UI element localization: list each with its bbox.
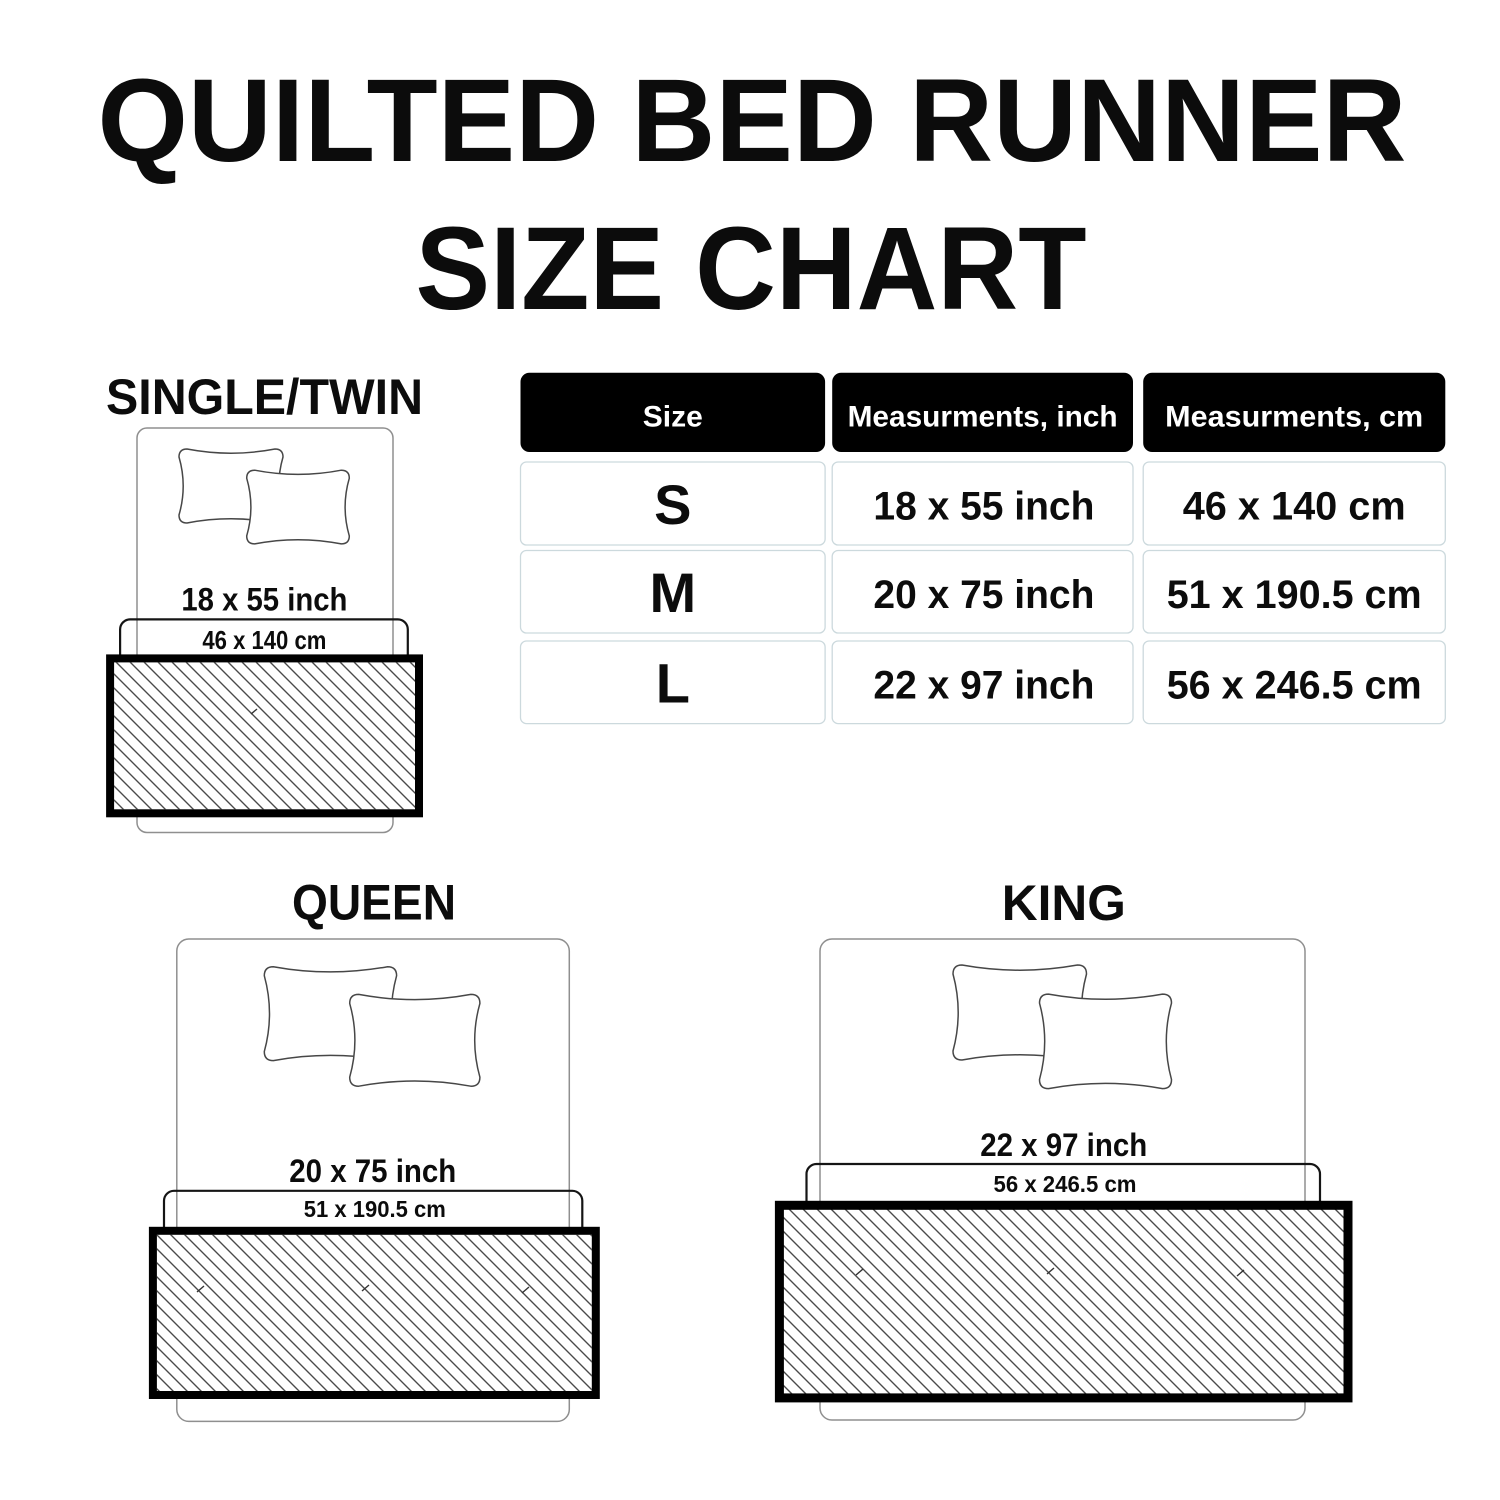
svg-text:QUILTED BED RUNNER: QUILTED BED RUNNER [98,55,1407,187]
svg-text:51 x 190.5 cm: 51 x 190.5 cm [1167,573,1422,617]
svg-text:51 x 190.5 cm: 51 x 190.5 cm [304,1196,446,1222]
svg-text:56 x 246.5 cm: 56 x 246.5 cm [1167,664,1422,708]
svg-text:L: L [656,652,690,715]
svg-text:SINGLE/TWIN: SINGLE/TWIN [106,369,423,425]
svg-text:20 x 75 inch: 20 x 75 inch [289,1153,456,1189]
svg-text:Size: Size [643,401,703,434]
svg-text:QUEEN: QUEEN [292,875,456,931]
svg-text:M: M [649,561,696,624]
svg-text:KING: KING [1002,875,1126,931]
svg-text:S: S [654,473,691,536]
svg-text:SIZE CHART: SIZE CHART [416,203,1087,335]
svg-text:Measurments, inch: Measurments, inch [848,401,1118,434]
svg-text:22 x 97 inch: 22 x 97 inch [873,664,1094,708]
svg-text:Measurments, cm: Measurments, cm [1165,401,1423,434]
svg-text:22 x 97 inch: 22 x 97 inch [980,1127,1147,1163]
svg-text:18 x 55 inch: 18 x 55 inch [873,485,1094,529]
svg-text:46 x 140 cm: 46 x 140 cm [1183,485,1406,529]
svg-text:46 x 140 cm: 46 x 140 cm [202,625,326,655]
svg-text:56 x 246.5 cm: 56 x 246.5 cm [994,1171,1137,1197]
svg-text:18 x 55 inch: 18 x 55 inch [181,582,347,618]
svg-text:20 x 75 inch: 20 x 75 inch [873,573,1094,617]
